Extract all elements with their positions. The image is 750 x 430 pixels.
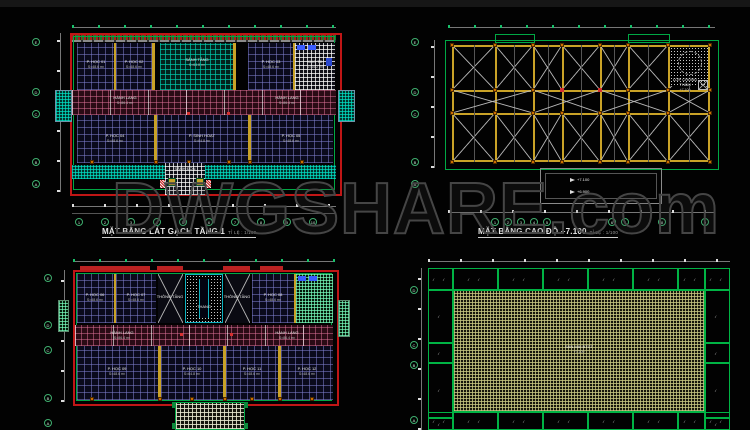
axis-bubble: 2 [504,218,512,226]
room-label: P. SINH HOẠTS=64.8 m² [185,134,219,143]
room-label: P. HỌC 04S=48.6 m² [98,134,132,143]
mesh-label: SÀN MÁI BTCT+7.100 [557,345,601,354]
joint-node [708,160,712,164]
wall [152,43,155,90]
purlin-cell: / [428,343,453,363]
purlin-cell: / / [498,268,543,290]
axis-bubble: 4 [153,218,161,226]
column-hatched [160,180,165,188]
purlin-cell: / [428,363,453,418]
dimension-ticks [61,270,64,402]
room-label: P. HỌC 06S=48.6 m² [79,293,111,302]
room-label: KHO TBS=16.2 m² [300,60,330,69]
room-label: P. HỌC 11S=48.6 m² [235,367,269,376]
dimension-ticks [448,210,715,213]
purlin-cell: / [705,343,730,363]
flag-icon [570,178,575,182]
joint-node [493,43,497,47]
axis-bubble: B [410,361,418,369]
purlin-cell: / [428,290,453,343]
dimension-ticks [72,204,336,207]
axis-bubble: 1 [75,218,83,226]
axis-bubble: A [410,416,418,424]
plan-title: MẶT BẰNG LÁT GẠCH TẦNG 1TỈ LỆ : 1/100 [102,227,256,238]
stair-well [199,279,209,318]
column-marker [230,333,233,336]
purlin-cell: / / [678,268,705,290]
axis-bubble: 7 [231,218,239,226]
plan-roof-mesh: / // // // // // // // // // // // // //… [395,253,750,430]
dimension-line [64,270,65,402]
x-brace-cell [452,90,533,113]
joint-node-red [560,88,564,92]
room-label: P. HỌC 12S=48.6 m² [290,367,324,376]
joint-node [626,43,630,47]
stair-label: THANG [187,305,221,310]
fixture [308,45,316,50]
corridor-label: HÀNH LANGS=86.4 m² [270,96,304,105]
joint-node [598,160,602,164]
fixture [298,276,306,281]
legend-xbox [698,80,708,90]
column-marker [180,333,183,336]
porch-inner [545,173,657,199]
joint-node [450,160,454,164]
joint-node [666,160,670,164]
purlin-cell: / [705,363,730,418]
column [190,397,194,401]
joint-node [531,111,535,115]
veranda [205,165,336,179]
joint-node [531,43,535,47]
column [250,397,254,401]
axis-bubble: C [44,346,52,354]
purlin-cell: / / [453,268,498,290]
fixture [309,276,317,281]
joint-node [598,43,602,47]
joint-node [708,88,712,92]
side-stair-left [55,90,72,122]
column [227,160,231,164]
joint-node [560,111,564,115]
joint-node [708,111,712,115]
purlin-cell: / [705,418,730,430]
column [300,160,304,164]
room-label: SẢNH TẦNGS=64.8 m² [180,58,214,67]
room-label: P. HỌC 03S=48.6 m² [254,60,288,69]
x-brace-cell [668,90,710,113]
column [172,423,176,429]
axis-bubble: C [410,341,418,349]
x-brace-cell [600,90,668,113]
room-label: P. HỌC 01S=48.6 m² [80,60,112,69]
column [154,160,158,164]
hatch-note: LỚP CHỐNG THẤM+7.100 [668,78,702,92]
axis-bubble: D [32,88,40,96]
axis-bubble: 3 [517,218,525,226]
porch [175,402,245,430]
room-label: P. HỌC 10S=64.8 m² [175,367,209,376]
purlin-cell: / / [633,268,678,290]
axis-bubble: 1 [491,218,499,226]
axis-bubble: 8 [658,218,666,226]
joint-node [493,88,497,92]
column [196,178,204,186]
dimension-ticks [72,25,336,28]
axis-bubble: B [32,158,40,166]
axis-bubble: 5 [179,218,187,226]
plan-tile-floor2: P. HỌC 06S=48.6 m² P. HỌC 07S=48.6 m² TH… [30,253,375,430]
x-brace-cell [533,90,600,113]
room-label: P. HỌC 02S=48.6 m² [118,60,150,69]
purlin-cell: / / [588,268,633,290]
dimension-line [72,213,336,214]
purlin-cell: / / [633,412,678,430]
axis-bubble: D [410,286,418,294]
column [90,160,94,164]
axis-bubble: E [44,274,52,282]
purlin-cell: / [705,290,730,343]
cad-drawing-canvas: P. HỌC 01S=48.6 m² P. HỌC 02S=48.6 m² SẢ… [0,0,750,430]
axis-bubble: A [411,180,419,188]
purlin-cell: / / [543,268,588,290]
axis-bubble: 2 [101,218,109,226]
room-label: THÔNG TẦNG [156,295,184,300]
plan-title: MẶT BẰNG CAO ĐỘ +7.100TỈ LỆ : 1/100 [478,227,618,238]
column [168,178,176,186]
column [310,397,314,401]
level-marker: +7.100 [570,177,589,182]
axis-bubble: D [411,88,419,96]
room-label: P. HỌC 09S=48.6 m² [100,367,134,376]
side-stair-right [338,90,355,122]
room-label: P. HỌC 08S=48.6 m² [256,293,290,302]
top-strip [0,0,750,7]
joint-node [450,111,454,115]
axis-bubble: C [411,110,419,118]
purlin-cell: / / [588,412,633,430]
purlin-cell: / / [705,268,730,290]
wall [233,43,236,90]
purlin-cell: / [428,418,453,430]
column [244,402,248,408]
purlin-cell: / / [453,412,498,430]
purlin-cell: / / [543,412,588,430]
veranda [72,165,165,179]
column [158,397,162,401]
axis-bubble: 6 [608,218,616,226]
plan-elevation: LỚP CHỐNG THẤM+7.100 +7.100 +6.900 MẶT B… [400,20,750,253]
axis-bubble: A [32,180,40,188]
column [248,160,252,164]
room-store [296,274,333,323]
column [278,397,282,401]
corridor-label: HÀNH LANGS=86.4 m² [108,96,142,105]
dashed-circle [678,51,702,75]
room-label: P. HỌC 05S=48.6 m² [274,134,308,143]
joint-node [560,160,564,164]
corridor-label: HÀNH LANGS=86.4 m² [270,331,304,340]
axis-bubble: 9 [701,218,709,226]
joint-node [666,111,670,115]
corridor-label: HÀNH LANGS=86.4 m² [105,331,139,340]
column [172,402,176,408]
column [244,423,248,429]
joint-node [626,88,630,92]
joint-node [626,160,630,164]
joint-node [493,160,497,164]
axis-bubble: 3 [127,218,135,226]
plan-tile-floor1: P. HỌC 01S=48.6 m² P. HỌC 02S=48.6 m² SẢ… [30,20,375,253]
room-label: THÔNG TẦNG [223,295,251,300]
axis-bubble: 4 [530,218,538,226]
axis-bubble: 9 [283,218,291,226]
axis-bubble: B [411,158,419,166]
axis-bubble: 10 [309,218,317,226]
axis-bubble: D [44,321,52,329]
axis-bubble: E [411,38,419,46]
axis-bubble: B [44,394,52,402]
joint-node [493,111,497,115]
joint-node [560,43,564,47]
column-hatched [206,180,211,188]
axis-bubble: A [44,419,52,427]
side-wing-right [338,300,350,337]
fixture [297,45,305,50]
axis-bubble: E [32,38,40,46]
purlin-cell: / / [428,268,453,290]
axis-bubble: 6 [205,218,213,226]
axis-bubble: 8 [257,218,265,226]
column [223,397,227,401]
flag-icon [570,190,575,194]
joint-node [708,43,712,47]
axis-bubble: 5 [543,218,551,226]
side-wing-left [58,300,69,332]
purlin-cell: / / [498,412,543,430]
entrance-label: SẢNH ĐÓN [167,167,203,172]
joint-node [626,111,630,115]
joint-node [450,43,454,47]
joint-node-red [598,88,602,92]
level-marker: +6.900 [570,189,589,194]
dimension-ticks [73,259,335,262]
axis-bubble: 7 [621,218,629,226]
column [90,397,94,401]
axis-bubble: C [32,110,40,118]
room-label: P. HỌC 07S=48.6 m² [120,293,152,302]
joint-node [450,88,454,92]
joint-node [531,160,535,164]
joint-node [531,88,535,92]
purlin-cell: / / [678,412,705,430]
joint-node [598,111,602,115]
